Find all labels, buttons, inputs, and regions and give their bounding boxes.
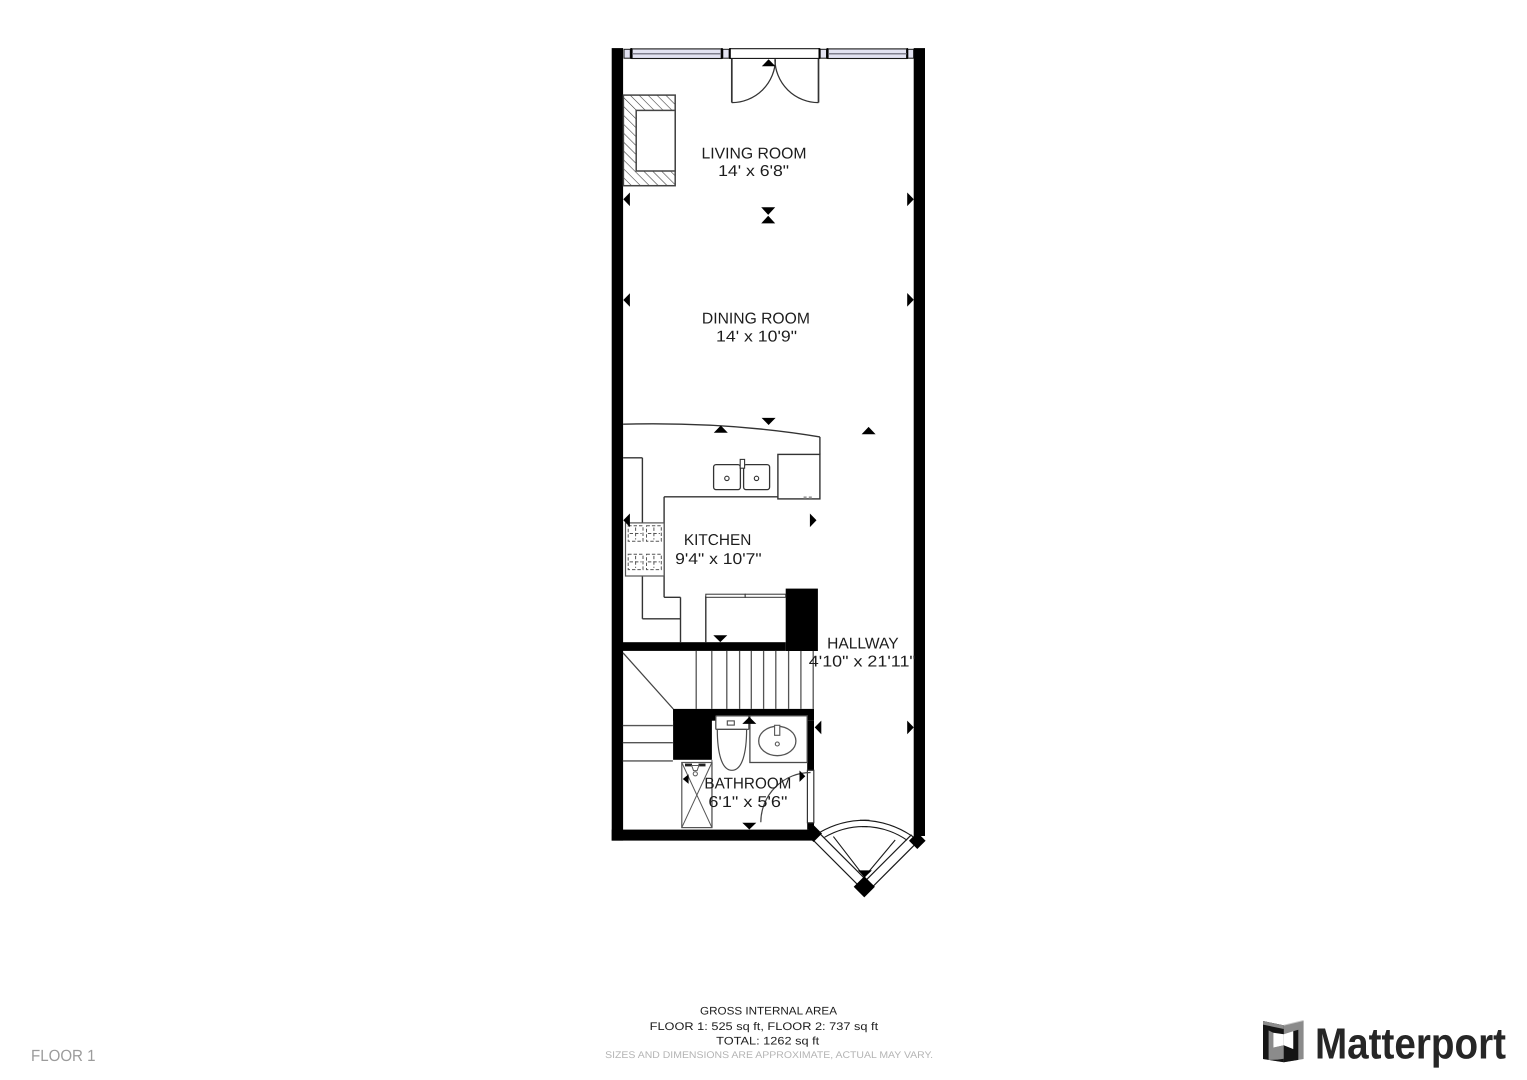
svg-text:BATHROOM: BATHROOM bbox=[704, 776, 791, 793]
svg-text:GROSS INTERNAL AREA: GROSS INTERNAL AREA bbox=[700, 1006, 838, 1018]
svg-text:4'10" x 21'11": 4'10" x 21'11" bbox=[809, 654, 916, 671]
svg-text:14' x 10'9": 14' x 10'9" bbox=[716, 329, 797, 346]
svg-text:KITCHEN: KITCHEN bbox=[684, 532, 751, 549]
svg-text:14' x 6'8": 14' x 6'8" bbox=[718, 163, 789, 180]
svg-text:TOTAL: 1262 sq ft: TOTAL: 1262 sq ft bbox=[716, 1035, 819, 1047]
svg-text:6'1" x 5'6": 6'1" x 5'6" bbox=[708, 794, 787, 811]
svg-text:FLOOR 1: 525 sq ft, FLOOR 2: 7: FLOOR 1: 525 sq ft, FLOOR 2: 737 sq ft bbox=[650, 1021, 879, 1033]
svg-text:LIVING ROOM: LIVING ROOM bbox=[702, 145, 807, 162]
svg-text:9'4" x 10'7": 9'4" x 10'7" bbox=[675, 551, 762, 568]
svg-text:SIZES AND DIMENSIONS ARE APPRO: SIZES AND DIMENSIONS ARE APPROXIMATE, AC… bbox=[605, 1050, 933, 1061]
svg-text:Matterport: Matterport bbox=[1315, 1019, 1506, 1068]
svg-text:DINING ROOM: DINING ROOM bbox=[702, 311, 810, 328]
svg-text:HALLWAY: HALLWAY bbox=[827, 635, 899, 652]
svg-text:FLOOR 1: FLOOR 1 bbox=[31, 1047, 96, 1065]
